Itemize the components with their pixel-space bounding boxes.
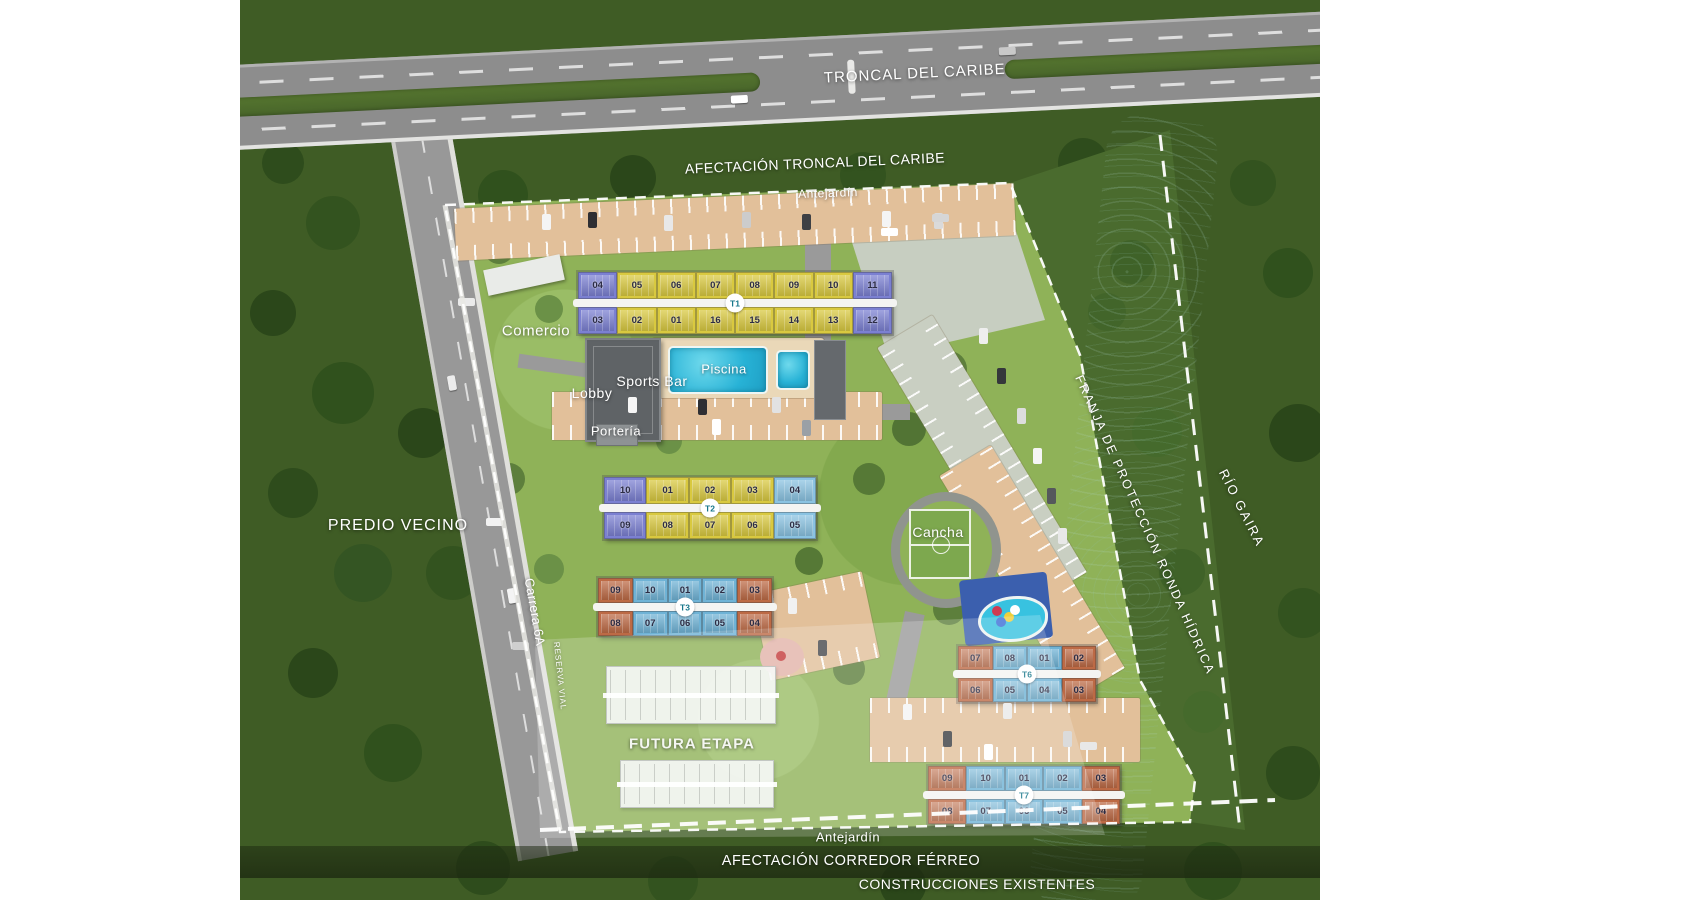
unit-cell: 10 xyxy=(814,272,853,299)
unit-cell: 09 xyxy=(604,512,646,539)
highway-median xyxy=(1004,43,1320,80)
amenity-label-lobby: Lobby xyxy=(572,385,613,401)
unit-cell: 08 xyxy=(646,512,688,539)
unit-cell: 03 xyxy=(1062,678,1097,702)
unit-cell: 09 xyxy=(774,272,813,299)
unit-cell: 09 xyxy=(598,578,633,603)
zone-label-predio-vecino: PREDIO VECINO xyxy=(328,517,468,535)
amenity-label-piscina: Piscina xyxy=(701,362,746,377)
soccer-field xyxy=(909,509,971,579)
car xyxy=(447,375,457,391)
building-t3: 09 10 01 02 03 T3 08 07 06 05 04 xyxy=(598,578,772,636)
unit-cell: 04 xyxy=(578,272,617,299)
zone-label-construcciones: CONSTRUCCIONES EXISTENTES xyxy=(859,876,1096,892)
unit-cell: 15 xyxy=(735,307,774,334)
unit-cell: 12 xyxy=(853,307,892,334)
unit-cell: 03 xyxy=(578,307,617,334)
building-corridor: T3 xyxy=(593,603,777,611)
unit-cell: 08 xyxy=(598,611,633,636)
zone-label-corredor-ferreo: AFECTACIÓN CORREDOR FÉRREO xyxy=(722,853,980,869)
unit-cell: 01 xyxy=(657,307,696,334)
unit-cell: 03 xyxy=(737,578,772,603)
unit-cell: 01 xyxy=(646,477,688,504)
river-label-rio-gaira: RÍO GAIRA xyxy=(1216,467,1268,550)
amenity-label-sports-bar: Sports Bar xyxy=(616,373,687,389)
car xyxy=(507,588,517,604)
amenity-label-porteria: Portería xyxy=(591,424,641,439)
site-plan-canvas: TRONCAL DEL CARIBE xyxy=(0,0,1701,900)
unit-cell: 10 xyxy=(604,477,646,504)
parked-cars xyxy=(240,0,257,8)
amenity-label-cancha: Cancha xyxy=(912,524,963,540)
unit-cell: 06 xyxy=(731,512,773,539)
car xyxy=(999,47,1016,56)
unit-cell: 03 xyxy=(731,477,773,504)
car xyxy=(731,95,748,104)
unit-cell: 11 xyxy=(853,272,892,299)
social-building xyxy=(814,340,846,420)
unit-cell: 14 xyxy=(774,307,813,334)
unit-cell: 02 xyxy=(702,578,737,603)
unit-cell: 05 xyxy=(774,512,816,539)
unit-cell: 05 xyxy=(617,272,656,299)
pool-ball xyxy=(992,606,1002,616)
unit-cell: 07 xyxy=(633,611,668,636)
unit-cell: 06 xyxy=(657,272,696,299)
building-corridor: T1 xyxy=(573,299,897,307)
pool-ball xyxy=(1010,605,1020,615)
masterplan-map: TRONCAL DEL CARIBE xyxy=(240,0,1320,900)
unit-cell: 02 xyxy=(1062,646,1097,670)
unit-cell: 13 xyxy=(814,307,853,334)
unit-cell: 02 xyxy=(617,307,656,334)
building-t1: 04 05 06 07 08 09 10 11 T1 03 02 01 16 1… xyxy=(578,272,892,334)
building-t3-badge: T3 xyxy=(676,598,695,617)
secondary-pool xyxy=(776,350,810,390)
building-t2: 10 01 02 03 04 T2 09 08 07 06 05 xyxy=(604,477,816,539)
unit-cell: 04 xyxy=(774,477,816,504)
unit-cell: 10 xyxy=(633,578,668,603)
zone-label-antejardin-top: Antejardín xyxy=(798,185,858,201)
amenity-label-comercio: Comercio xyxy=(502,323,570,340)
building-t2-badge: T2 xyxy=(701,499,720,518)
building-corridor: T2 xyxy=(599,504,821,512)
zone-label-antejardin-bottom: Antejardín xyxy=(816,830,880,845)
zone-label-afectacion-troncal: AFECTACIÓN TRONCAL DEL CARIBE xyxy=(685,149,946,176)
building-t1-badge: T1 xyxy=(726,294,745,313)
zone-label-futura-etapa: FUTURA ETAPA xyxy=(629,736,755,753)
